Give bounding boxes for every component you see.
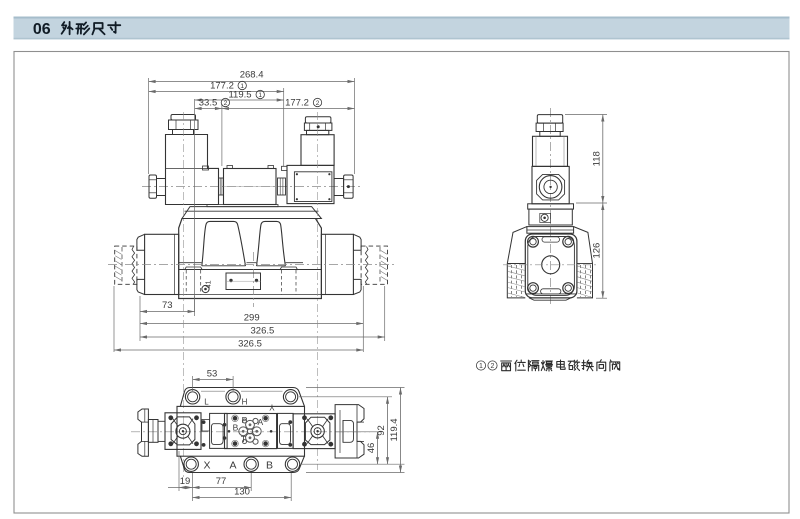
svg-text:2: 2 [491, 363, 495, 370]
svg-text:P: P [242, 415, 248, 425]
svg-text:1: 1 [479, 363, 483, 370]
svg-text:Y: Y [269, 403, 275, 412]
svg-text:2: 2 [224, 100, 228, 107]
svg-text:268.4: 268.4 [240, 70, 264, 81]
svg-text:33.5: 33.5 [199, 98, 218, 109]
svg-text:L: L [204, 398, 209, 407]
svg-text:326.5: 326.5 [238, 339, 262, 350]
svg-text:H: H [242, 398, 248, 407]
svg-text:B: B [266, 460, 273, 472]
svg-text:119.4: 119.4 [389, 418, 400, 441]
svg-text:T: T [241, 434, 246, 444]
svg-text:119.5: 119.5 [228, 90, 251, 101]
svg-text:77: 77 [216, 476, 227, 487]
svg-text:130: 130 [234, 487, 250, 498]
svg-text:1: 1 [258, 92, 262, 99]
svg-text:299: 299 [244, 313, 260, 324]
svg-text:A: A [257, 417, 263, 427]
svg-text:B: B [233, 423, 239, 433]
svg-text:19: 19 [180, 476, 191, 487]
svg-text:2: 2 [316, 100, 320, 107]
svg-text:X: X [203, 460, 210, 472]
svg-text:92: 92 [376, 425, 387, 436]
svg-text:177.2: 177.2 [285, 98, 309, 109]
svg-text:41: 41 [204, 280, 213, 288]
svg-text:06: 06 [33, 21, 51, 38]
svg-text:126: 126 [592, 243, 603, 259]
svg-text:A: A [229, 460, 236, 472]
svg-text:46: 46 [366, 443, 377, 454]
svg-text:73: 73 [162, 300, 173, 311]
svg-text:118: 118 [592, 151, 603, 166]
svg-text:326.5: 326.5 [251, 326, 275, 337]
svg-text:53: 53 [207, 369, 218, 380]
